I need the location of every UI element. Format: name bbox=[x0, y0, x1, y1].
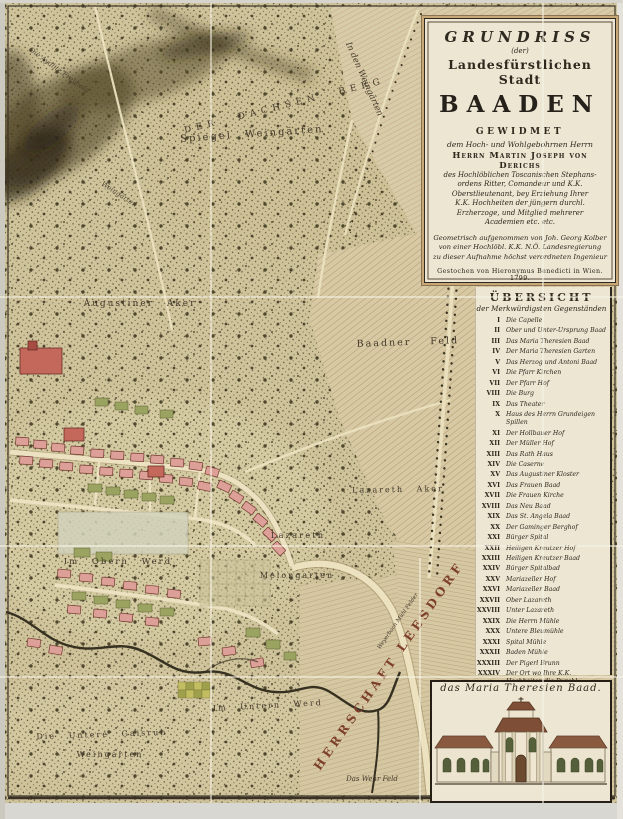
legend-label: Die Caserne bbox=[506, 461, 544, 469]
map-label-obern-werd: Im Obern Werd bbox=[64, 557, 172, 567]
legend-row: XV Das Augustiner Kloster bbox=[476, 471, 607, 479]
legend-row: XXVII Ober Lazareth bbox=[476, 597, 607, 605]
legend-row: VIII Die Burg bbox=[476, 390, 607, 398]
legend-label: Das Herzog und Antoni Baad bbox=[506, 359, 597, 367]
legend-label: Unter Lazareth bbox=[506, 607, 554, 615]
legend-list: I Die Capelle II Ober und Unter-Ursprung… bbox=[476, 317, 607, 726]
dedication-lines: des Hochlöblichen Toscanischen Stephans-… bbox=[430, 171, 610, 227]
legend-numeral: XV bbox=[476, 471, 500, 479]
legend-label: Das Frauen Baad bbox=[506, 482, 560, 490]
map-label-wehr-feld: Das Wehr Feld bbox=[345, 775, 398, 783]
inset-caption: das Maria Theresien Baad. bbox=[432, 683, 610, 694]
legend-label: Ober Lazareth bbox=[506, 597, 551, 605]
map-label-gaisruh-2: Weingarten bbox=[77, 750, 144, 759]
surveyor-lines: Geometrisch aufgenommen von Joh. Georg K… bbox=[430, 234, 610, 262]
legend-row: VII Der Pfarr Hof bbox=[476, 380, 607, 388]
dedication-line: des Hochlöblichen Toscanischen Stephans- bbox=[430, 171, 610, 180]
legend-numeral: II bbox=[476, 327, 500, 335]
legend-numeral: IV bbox=[476, 348, 500, 356]
legend-numeral: XXI bbox=[476, 534, 500, 542]
map-subtitle: Landesfürstlichen Stadt bbox=[430, 57, 610, 87]
legend-row: IX Das Theater bbox=[476, 401, 607, 409]
dedication-line: ordens Ritter, Comandeur und K.K. bbox=[430, 180, 610, 189]
title-cartouche: GRUNDRISS (der) Landesfürstlichen Stadt … bbox=[424, 18, 616, 283]
legend-row: XXX Untere Bleumühle bbox=[476, 628, 607, 636]
dedication-line: Academien etc. etc. bbox=[430, 218, 610, 227]
legend-numeral: X bbox=[476, 411, 500, 427]
legend-row: VI Die Pfarr Kirchen bbox=[476, 369, 607, 377]
legend-numeral: XIV bbox=[476, 461, 500, 469]
legend-numeral: V bbox=[476, 359, 500, 367]
legend-label: Die Pfarr Kirchen bbox=[506, 369, 561, 377]
legend-row: XXV Mariazeller Hof bbox=[476, 576, 607, 584]
legend-label: Das St. Angela Baad bbox=[506, 513, 570, 521]
legend-panel: ÜBERSICHT der Merkwürdigsten Gegenstände… bbox=[475, 287, 612, 675]
legend-label: Ober und Unter-Ursprung Baad bbox=[506, 327, 606, 335]
legend-numeral: XXIX bbox=[476, 618, 500, 626]
legend-numeral: XVII bbox=[476, 492, 500, 500]
legend-row: XXIX Die Herrn Mühle bbox=[476, 618, 607, 626]
legend-row: XI Der Hollbauer Hof bbox=[476, 430, 607, 438]
legend-label: Bürger Spitalbad bbox=[506, 565, 560, 573]
legend-row: XVII Die Frauen Kirche bbox=[476, 492, 607, 500]
legend-row: V Das Herzog und Antoni Baad bbox=[476, 359, 607, 367]
legend-label: Das Augustiner Kloster bbox=[506, 471, 579, 479]
legend-numeral: XXXII bbox=[476, 649, 500, 657]
legend-numeral: XXXI bbox=[476, 639, 500, 647]
legend-row: XX Der Gaminger Berghof bbox=[476, 524, 607, 532]
legend-numeral: VI bbox=[476, 369, 500, 377]
legend-label: Haus des Herrn Grundeigen Spillen bbox=[506, 411, 607, 427]
legend-label: Die Burg bbox=[506, 390, 534, 398]
legend-numeral: XXVI bbox=[476, 586, 500, 594]
legend-numeral: XXVIII bbox=[476, 607, 500, 615]
legend-label: Untere Bleumühle bbox=[506, 628, 564, 636]
dedication-line: K.K. Hochheiten der jüngern durchl. bbox=[430, 199, 610, 208]
legend-numeral: XXIII bbox=[476, 555, 500, 563]
legend-row: XXI Bürger Spital bbox=[476, 534, 607, 542]
legend-numeral: XI bbox=[476, 430, 500, 438]
surveyor-line: zu dieser Aufnahme höchst verordneten In… bbox=[430, 253, 610, 262]
map-title: GRUNDRISS bbox=[430, 28, 610, 46]
legend-row: III Das Maria Theresien Baad bbox=[476, 338, 607, 346]
bath-house-illustration bbox=[433, 694, 609, 790]
legend-subtitle: der Merkwürdigsten Gegenständen bbox=[476, 304, 607, 313]
legend-label: Heiligen Kreutzer Baad bbox=[506, 555, 580, 563]
legend-row: XXIV Bürger Spitalbad bbox=[476, 565, 607, 573]
engraver-line: Gestochen von Hieronymus Benedicti in Wi… bbox=[430, 268, 610, 282]
legend-numeral: XIII bbox=[476, 451, 500, 459]
legend-numeral: I bbox=[476, 317, 500, 325]
legend-numeral: XX bbox=[476, 524, 500, 532]
legend-label: Mariazeller Baad bbox=[506, 586, 560, 594]
map-label-melongarten: Melongarten bbox=[260, 571, 334, 580]
legend-numeral: XXV bbox=[476, 576, 500, 584]
legend-row: XXVIII Unter Lazareth bbox=[476, 607, 607, 615]
legend-label: Das Theater bbox=[506, 401, 544, 409]
legend-label: Baden Mühle bbox=[506, 649, 548, 657]
legend-row: XIII Das Rath Haus bbox=[476, 451, 607, 459]
legend-label: Der Pigerl Brunn bbox=[506, 660, 560, 668]
legend-label: Der Pfarr Hof bbox=[506, 380, 549, 388]
legend-numeral: XIX bbox=[476, 513, 500, 521]
inset-panel: das Maria Theresien Baad. bbox=[430, 680, 612, 803]
legend-numeral: IX bbox=[476, 401, 500, 409]
legend-title: ÜBERSICHT bbox=[476, 291, 607, 304]
map-label-lazareth-aker: Lazareth Aker bbox=[352, 484, 444, 495]
legend-row: XXXIII Der Pigerl Brunn bbox=[476, 660, 607, 668]
legend-row: XIX Das St. Angela Baad bbox=[476, 513, 607, 521]
legend-numeral: XVI bbox=[476, 482, 500, 490]
legend-numeral: XXII bbox=[476, 545, 500, 553]
legend-row: XVI Das Frauen Baad bbox=[476, 482, 607, 490]
legend-numeral: XXIV bbox=[476, 565, 500, 573]
legend-label: Die Herrn Mühle bbox=[506, 618, 559, 626]
dedication-intro: dem Hoch- und Wohlgebohrnen Herrn bbox=[430, 140, 610, 149]
map-sheet: Der Dachsen Berg Die Aydlitz Freyhaid We… bbox=[0, 0, 623, 819]
legend-row: I Die Capelle bbox=[476, 317, 607, 325]
legend-row: XXXII Baden Mühle bbox=[476, 649, 607, 657]
legend-row: XXIII Heiligen Kreutzer Baad bbox=[476, 555, 607, 563]
surveyor-line: von einer Hochlöbl. K.K. N.Ö. Landesregi… bbox=[430, 243, 610, 252]
legend-label: Das Rath Haus bbox=[506, 451, 553, 459]
legend-row: X Haus des Herrn Grundeigen Spillen bbox=[476, 411, 607, 427]
legend-label: Die Capelle bbox=[506, 317, 542, 325]
legend-numeral: XII bbox=[476, 440, 500, 448]
dedicatee-name: Herrn Martin Joseph von Derichs bbox=[430, 151, 610, 171]
dedication-heading: GEWIDMET bbox=[430, 127, 610, 137]
legend-row: IV Der Maria Theresien Garten bbox=[476, 348, 607, 356]
map-label-augustiner-aker: Augustiner Aker bbox=[83, 299, 197, 309]
legend-label: Das Neu Baad bbox=[506, 503, 551, 511]
legend-label: Bürger Spital bbox=[506, 534, 548, 542]
legend-label: Das Maria Theresien Baad bbox=[506, 338, 589, 346]
legend-numeral: XVIII bbox=[476, 503, 500, 511]
legend-label: Der Hollbauer Hof bbox=[506, 430, 564, 438]
legend-label: Der Gaminger Berghof bbox=[506, 524, 578, 532]
legend-label: Spital Mühle bbox=[506, 639, 546, 647]
legend-row: XXXI Spital Mühle bbox=[476, 639, 607, 647]
legend-numeral: XXVII bbox=[476, 597, 500, 605]
legend-label: Der Müller Hof bbox=[506, 440, 554, 448]
legend-label: Die Frauen Kirche bbox=[506, 492, 564, 500]
dedication-line: Erzherzoge, und Mitglied mehrerer bbox=[430, 209, 610, 218]
legend-row: XXII Heiligen Kreutzer Hof bbox=[476, 545, 607, 553]
legend-numeral: VIII bbox=[476, 390, 500, 398]
legend-label: Heiligen Kreutzer Hof bbox=[506, 545, 576, 553]
map-label-lazareth: Lazareth bbox=[271, 531, 325, 541]
legend-numeral: III bbox=[476, 338, 500, 346]
city-name: BAADEN bbox=[430, 91, 610, 118]
map-title-der: (der) bbox=[430, 47, 610, 55]
legend-row: XVIII Das Neu Baad bbox=[476, 503, 607, 511]
legend-numeral: XXXIII bbox=[476, 660, 500, 668]
legend-row: XXVI Mariazeller Baad bbox=[476, 586, 607, 594]
dedication-line: Oberstlieutenant, bey Erziehung Ihrer bbox=[430, 190, 610, 199]
legend-row: XIV Die Caserne bbox=[476, 461, 607, 469]
legend-numeral: VII bbox=[476, 380, 500, 388]
legend-row: II Ober und Unter-Ursprung Baad bbox=[476, 327, 607, 335]
legend-numeral: XXX bbox=[476, 628, 500, 636]
legend-row: XII Der Müller Hof bbox=[476, 440, 607, 448]
legend-label: Der Maria Theresien Garten bbox=[506, 348, 595, 356]
legend-label: Mariazeller Hof bbox=[506, 576, 556, 584]
